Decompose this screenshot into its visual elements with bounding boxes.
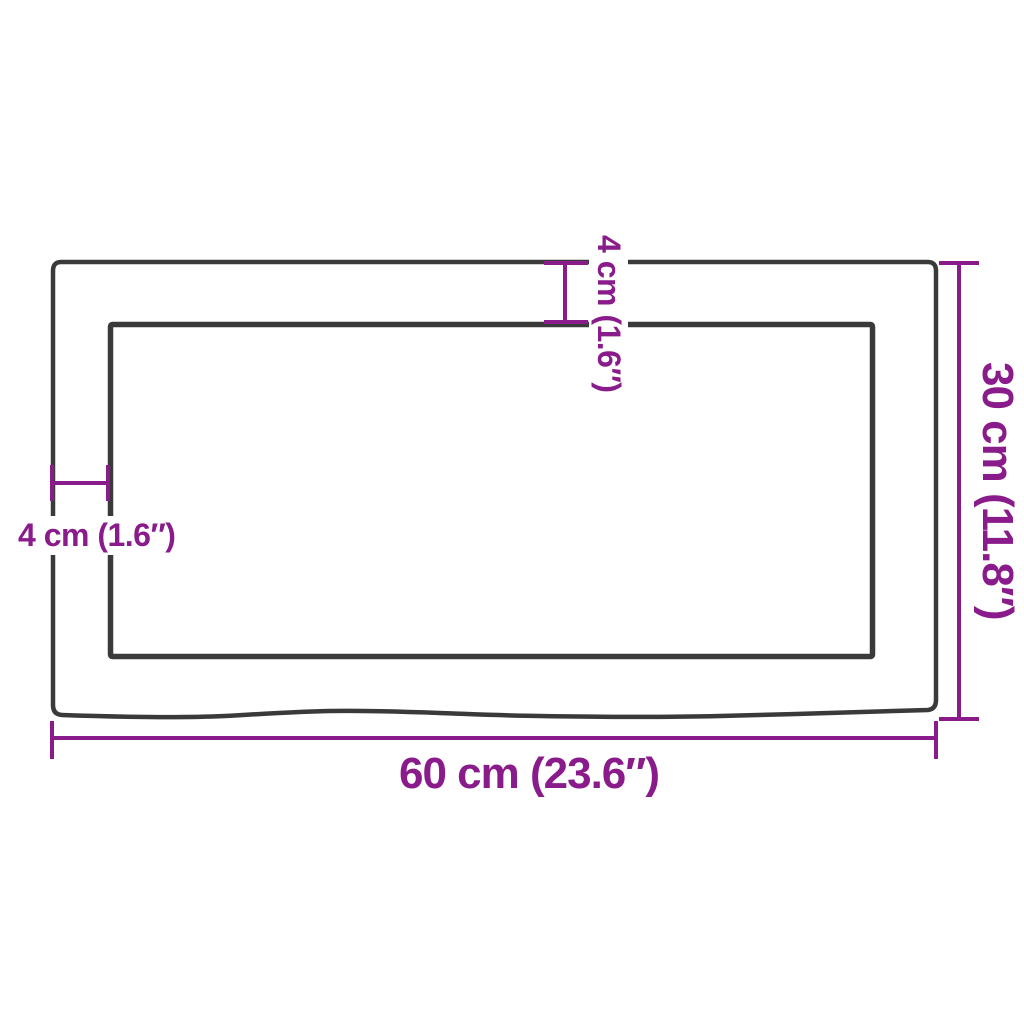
diagram-drawing: [0, 0, 1024, 1024]
board-outline-group: [53, 262, 936, 717]
board-outer-edge: [53, 262, 936, 717]
dim-label-height: 30 cm (11.8″): [971, 356, 1023, 626]
dimension-lines: [52, 263, 977, 757]
dim-label-width: 60 cm (23.6″): [393, 748, 665, 800]
dim-label-top-inset: 4 cm (1.6″): [589, 229, 628, 398]
dim-top-inset: [546, 263, 586, 322]
dim-label-left-inset: 4 cm (1.6″): [12, 516, 181, 555]
dim-left-inset: [52, 467, 108, 499]
board-inner-recess: [111, 325, 873, 657]
dimension-diagram: 4 cm (1.6″) 4 cm (1.6″) 30 cm (11.8″) 60…: [0, 0, 1024, 1024]
